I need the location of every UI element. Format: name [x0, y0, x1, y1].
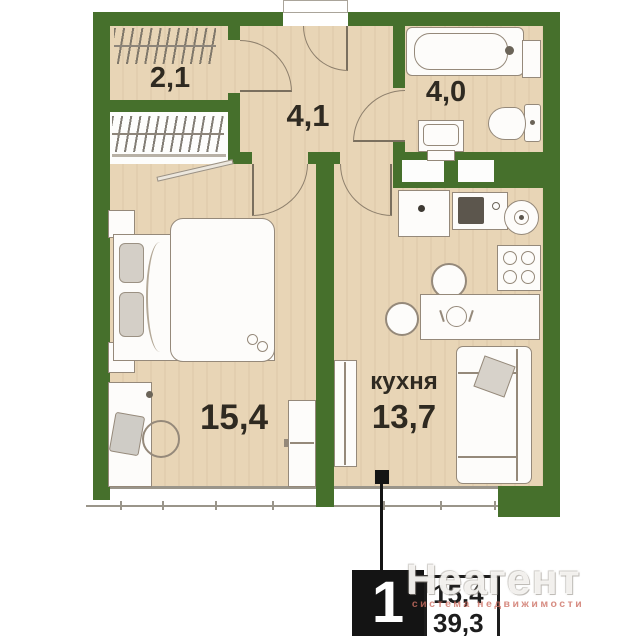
- stove-burner: [521, 251, 535, 265]
- kitchen-table: [420, 294, 540, 340]
- wall-divider: [316, 152, 334, 507]
- bed-sheet-fold: [146, 242, 174, 352]
- bathtub-inner: [414, 33, 508, 70]
- facade-line: [86, 505, 543, 507]
- sofa-back-line: [516, 349, 518, 481]
- wardrobe-divider: [290, 442, 314, 444]
- bed-pillow: [119, 243, 144, 283]
- kitchen-stool: [385, 302, 419, 336]
- facade-tick: [215, 501, 217, 510]
- desk-chair-symbol: [142, 420, 180, 458]
- facade-tick: [383, 501, 385, 510]
- toilet-bowl: [488, 107, 526, 140]
- facade-tick: [120, 501, 122, 510]
- kitchen-sink-bowl: [458, 197, 484, 224]
- closet-shelf: [112, 154, 226, 157]
- facade-tick: [162, 501, 164, 510]
- hanger-rail-line: [114, 45, 216, 47]
- entrance-door-leaf: [283, 0, 348, 13]
- bed-duvet: [170, 218, 275, 362]
- bathroom-sink-basin: [423, 124, 459, 146]
- duct-opening: [402, 160, 444, 182]
- floorplan-canvas: 2,1 4,1 4,0 15,4 кухня 13,7 1 15,4 39,3 …: [0, 0, 636, 636]
- facade-tick: [440, 501, 442, 510]
- stove-burner: [521, 270, 535, 284]
- callout-line: [380, 482, 383, 574]
- wall-bath-upper: [393, 26, 405, 88]
- hanger-rail-line: [112, 133, 224, 135]
- wall-right: [543, 12, 560, 500]
- facade-tick: [272, 501, 274, 510]
- total-area-value: 39,3: [433, 609, 497, 636]
- room-area-label-bedroom: 15,4: [178, 400, 290, 435]
- kitchen-sink-faucet: [492, 202, 500, 210]
- fridge-divider: [344, 362, 346, 465]
- room-area-label-kitchen: 13,7: [352, 400, 456, 433]
- sofa-armrest-line: [458, 456, 518, 458]
- bath-shelf: [522, 40, 541, 78]
- room-area-label-bathroom: 4,0: [408, 78, 484, 107]
- room-name-label-kitchen: кухня: [352, 370, 456, 394]
- bathroom-sink-pedestal: [427, 150, 455, 161]
- bed-pillow: [119, 292, 144, 337]
- kitchen-cabinet: [398, 190, 450, 237]
- wall-top-right-segment: [348, 12, 560, 26]
- stove-burner: [503, 251, 517, 265]
- duct-opening: [458, 160, 494, 182]
- blanket-curl: [247, 334, 258, 345]
- toilet-tank-button: [530, 120, 535, 125]
- blanket-curl: [257, 341, 268, 352]
- wardrobe-handle: [284, 439, 288, 447]
- facade-tick: [494, 501, 496, 510]
- wall-under-wardrobe: [108, 100, 240, 112]
- bathtub-faucet: [505, 46, 514, 55]
- room-area-label-hallway: 4,1: [268, 100, 348, 131]
- kitchen-cabinet-knob: [418, 205, 425, 212]
- plate-symbol: [446, 306, 467, 327]
- wall-top-left-segment: [93, 12, 283, 26]
- stove-burner: [503, 270, 517, 284]
- watermark-subtitle: система недвижимости: [400, 598, 596, 610]
- wall-hall-left-upper: [228, 26, 240, 40]
- desk-lamp-dot: [146, 391, 153, 398]
- room-area-label-wardrobe: 2,1: [134, 64, 206, 93]
- washing-machine-dot: [519, 215, 524, 220]
- wall-corner-bottom-right: [498, 486, 560, 517]
- stove-symbol: [497, 245, 541, 291]
